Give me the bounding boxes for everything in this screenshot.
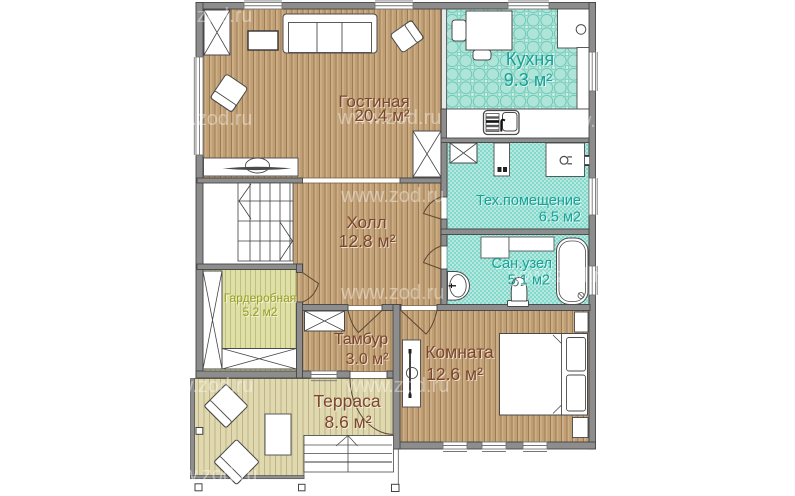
svg-text:Тех.помещение: Тех.помещение xyxy=(476,193,581,209)
svg-text:Комната: Комната xyxy=(425,342,494,362)
svg-text:Тамбур: Тамбур xyxy=(334,331,388,348)
svg-text:www.zod.ru: www.zod.ru xyxy=(148,108,252,130)
svg-text:www.zod.ru: www.zod.ru xyxy=(340,282,444,304)
svg-text:www.zod.ru: www.zod.ru xyxy=(153,464,257,486)
svg-text:www.zod.ru: www.zod.ru xyxy=(148,5,252,27)
svg-text:Кухня: Кухня xyxy=(506,49,554,69)
svg-text:www.zod.ru: www.zod.ru xyxy=(149,375,253,397)
svg-text:3.0 м²: 3.0 м² xyxy=(345,351,389,368)
svg-text:6.5 м2: 6.5 м2 xyxy=(539,210,581,226)
svg-text:20.4 м²: 20.4 м² xyxy=(354,106,409,125)
svg-text:5.1 м2: 5.1 м2 xyxy=(508,273,550,289)
svg-text:9.3 м²: 9.3 м² xyxy=(504,70,552,90)
svg-text:5.2 м2: 5.2 м2 xyxy=(243,305,278,319)
svg-text:Сан.узел: Сан.узел xyxy=(491,256,552,272)
svg-text:12.6 м²: 12.6 м² xyxy=(426,364,483,384)
svg-text:Холл: Холл xyxy=(346,213,386,232)
svg-text:Гардеробная: Гардеробная xyxy=(224,291,297,305)
svg-text:Терраса: Терраса xyxy=(313,391,380,411)
svg-text:12.8 м²: 12.8 м² xyxy=(339,231,396,251)
svg-text:www.zod.ru: www.zod.ru xyxy=(547,110,651,132)
svg-text:8.6 м²: 8.6 м² xyxy=(324,412,371,432)
svg-text:www.zod.ru: www.zod.ru xyxy=(340,185,444,207)
